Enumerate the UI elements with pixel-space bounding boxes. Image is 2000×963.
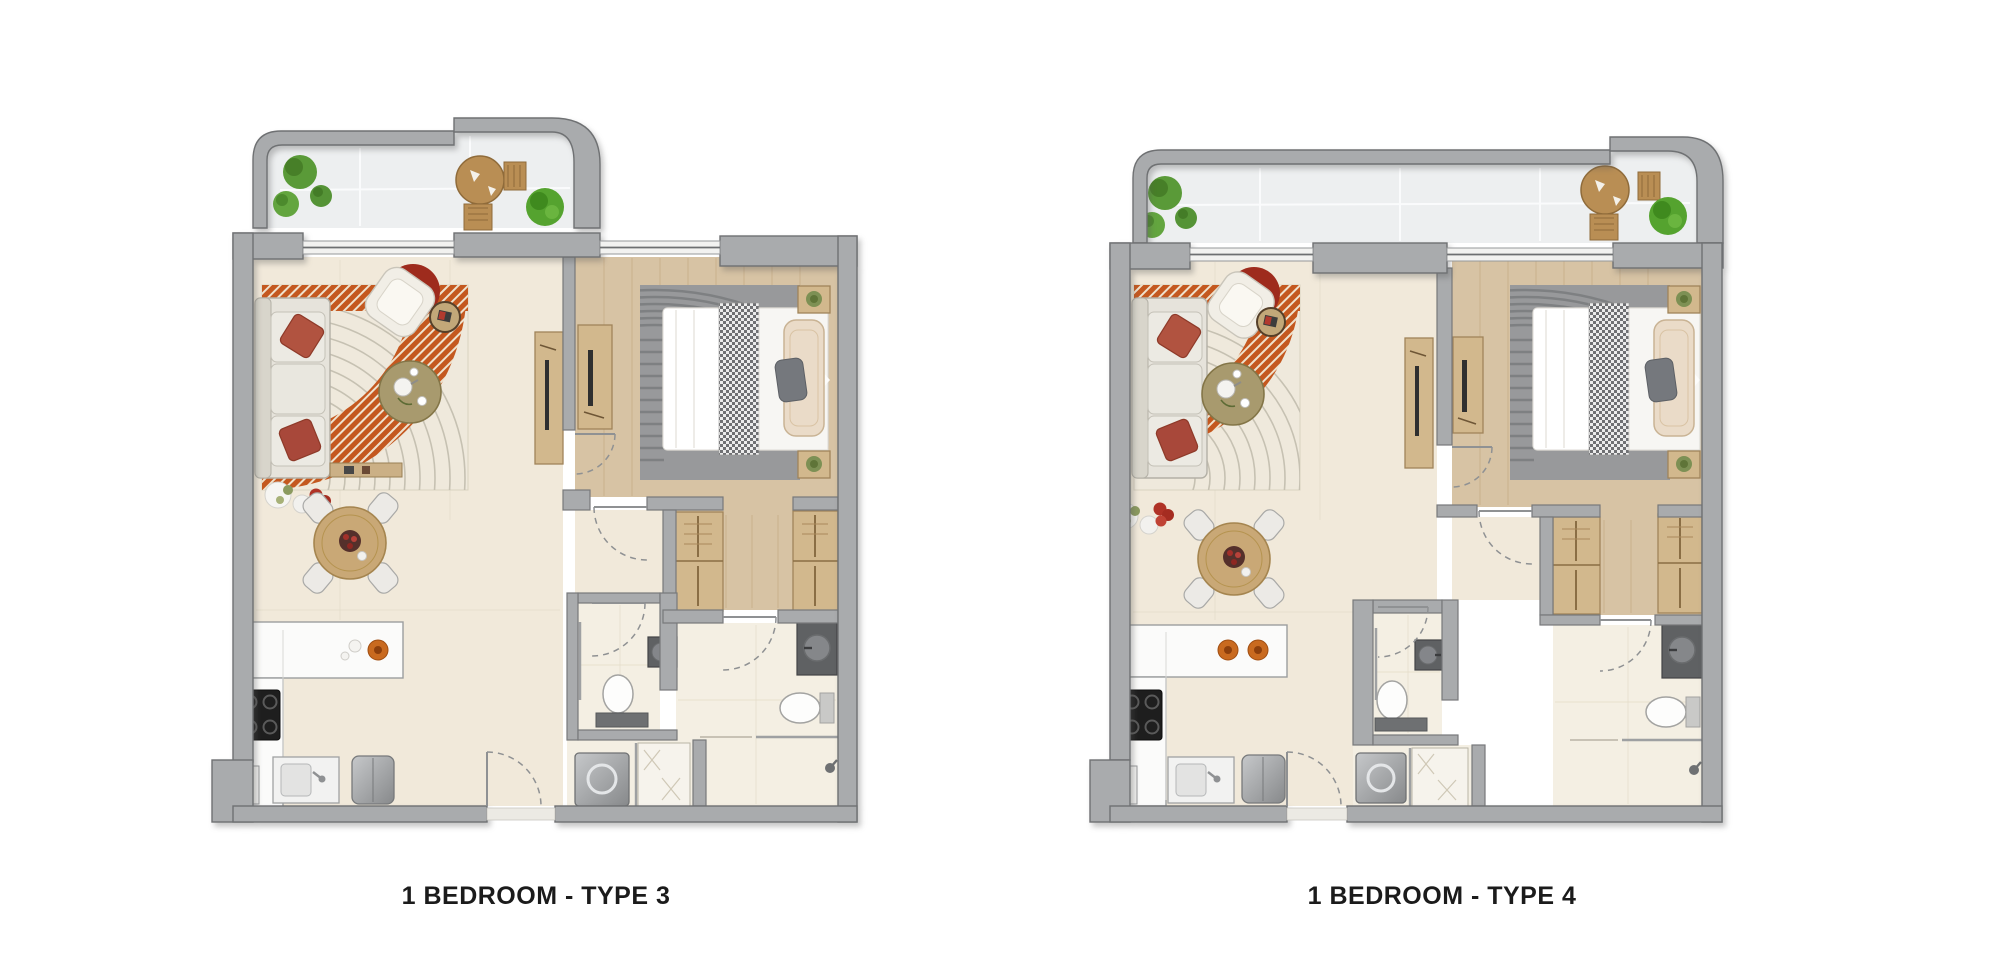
bathroom1-floor (1373, 613, 1442, 735)
shower (1410, 748, 1468, 806)
wardrobe (793, 511, 838, 611)
bedroom-dresser (1453, 337, 1483, 433)
entry-threshold (487, 808, 555, 820)
balcony-chair (504, 162, 526, 190)
toilet (1646, 697, 1700, 727)
floorplan-caption-type-4: 1 BEDROOM - TYPE 4 (1308, 882, 1577, 911)
entry-threshold (1287, 808, 1347, 820)
vanity (1662, 625, 1702, 678)
washbasin (1415, 640, 1442, 670)
vanity (797, 622, 837, 675)
floorplan-type-3 (180, 90, 880, 835)
balcony-chair (1638, 172, 1660, 200)
fridge (1242, 755, 1285, 803)
nightstand (1668, 286, 1700, 313)
sofa (1132, 298, 1207, 478)
floorplan-type-4 (1070, 90, 1750, 835)
bedroom-dresser (578, 325, 612, 429)
washing-machine (1356, 753, 1406, 803)
wardrobe (1553, 517, 1600, 614)
wardrobe (673, 512, 723, 611)
laundry-shower (1356, 748, 1468, 806)
sofa (255, 298, 330, 478)
shower (636, 743, 690, 806)
page: { "page": { "background": "#ffffff" }, "… (0, 0, 2000, 963)
toilet (780, 693, 834, 723)
double-bed (1533, 303, 1700, 455)
floorplan-caption-type-3: 1 BEDROOM - TYPE 3 (402, 882, 671, 911)
double-bed (663, 303, 830, 455)
wardrobe (1658, 514, 1702, 613)
nightstand (798, 451, 830, 478)
side-table (1257, 308, 1285, 336)
kitchen-sink (273, 757, 339, 803)
fridge (352, 756, 394, 804)
washing-machine (575, 753, 629, 806)
tv-sideboard (535, 332, 563, 464)
coffee-table (1202, 363, 1264, 425)
nightstand (1668, 451, 1700, 478)
side-table (430, 302, 460, 332)
nightstand (798, 286, 830, 313)
tv-sideboard (1405, 338, 1433, 468)
coffee-table (379, 361, 441, 423)
lumbar-pillow (1644, 357, 1678, 402)
lumbar-pillow (774, 357, 808, 402)
kitchen-sink (1168, 757, 1234, 803)
